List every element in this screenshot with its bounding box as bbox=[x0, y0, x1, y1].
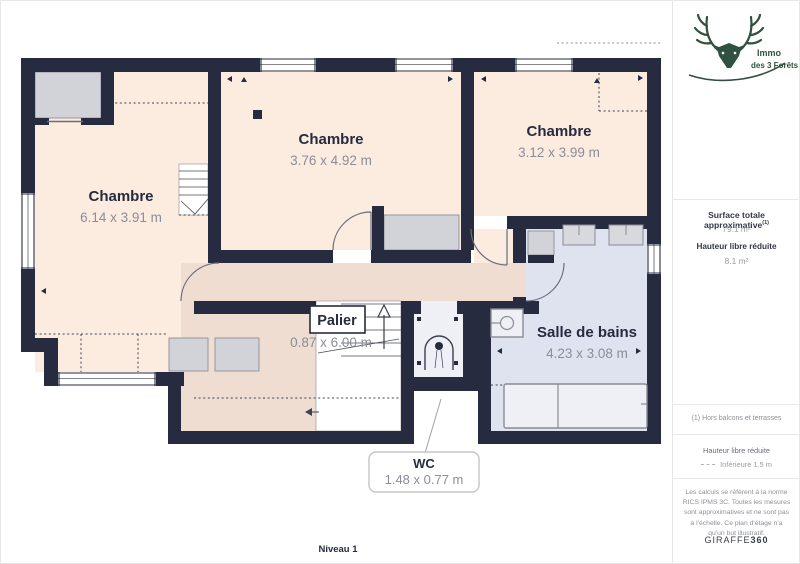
disclaimer-text: Les calculs se réfèrent à la norme RICS … bbox=[682, 488, 791, 539]
legend-item-label: Inférieure 1.5 m bbox=[720, 460, 772, 469]
room-name: Chambre bbox=[298, 131, 363, 148]
deer-logo-icon: Immo des 3 Forêts bbox=[673, 11, 800, 101]
wardrobe-2 bbox=[215, 338, 259, 371]
divider bbox=[673, 478, 800, 479]
callout-leader-line bbox=[425, 399, 441, 453]
floorplan-page: Chambre 6.14 x 3.91 m Chambre 3.76 x 4.9… bbox=[0, 0, 800, 564]
level-label: Niveau 1 bbox=[318, 544, 358, 555]
window-icon bbox=[260, 58, 316, 72]
window-icon bbox=[21, 193, 35, 269]
divider bbox=[673, 434, 800, 435]
window-icon bbox=[515, 58, 573, 72]
pillar bbox=[253, 110, 262, 119]
room-dims: 6.14 x 3.91 m bbox=[80, 210, 162, 225]
vanity-icon bbox=[563, 225, 595, 245]
window-icon bbox=[647, 244, 661, 274]
small-stairs-icon bbox=[179, 164, 208, 215]
room-name: Chambre bbox=[88, 188, 153, 205]
window-icon bbox=[58, 372, 156, 386]
wardrobe-1 bbox=[169, 338, 208, 371]
room-name: WC bbox=[413, 456, 435, 471]
brand-name-line1: Immo bbox=[757, 48, 782, 58]
bathtub-icon bbox=[504, 384, 647, 428]
room-dims: 3.76 x 4.92 m bbox=[290, 153, 372, 168]
floorplan-canvas: Chambre 6.14 x 3.91 m Chambre 3.76 x 4.9… bbox=[1, 1, 673, 564]
reduced-height-value: 8.1 m² bbox=[677, 256, 796, 266]
room-name: Palier bbox=[317, 313, 357, 329]
vanity-icon bbox=[609, 225, 643, 245]
room-dims: 3.12 x 3.99 m bbox=[518, 145, 600, 160]
brand-logo: Immo des 3 Forêts bbox=[673, 11, 800, 106]
info-sidebar: Immo des 3 Forêts Surface totale approxi… bbox=[672, 1, 800, 563]
closet-bathroom bbox=[528, 231, 554, 255]
brand-text-bold: 360 bbox=[750, 535, 768, 545]
surface-total-value: 79.1 m² bbox=[677, 224, 796, 234]
footnote: (1) Hors balcons et terrasses bbox=[677, 415, 796, 422]
divider bbox=[673, 199, 800, 200]
room-dims: 0.87 x 6.00 m bbox=[290, 335, 372, 350]
window-icon bbox=[395, 58, 453, 72]
reduced-height-label: Hauteur libre réduite bbox=[677, 242, 796, 251]
brand-text: GIRAFFE bbox=[704, 535, 750, 545]
closet-top-left bbox=[35, 72, 101, 118]
sink-icon bbox=[491, 309, 523, 337]
room-name: Salle de bains bbox=[537, 324, 637, 341]
legend-row: Inférieure 1.5 m bbox=[677, 460, 796, 469]
giraffe360-brand: GIRAFFE360 bbox=[677, 535, 796, 545]
legend-title: Hauteur libre réduite bbox=[677, 446, 796, 455]
room-name: Chambre bbox=[526, 123, 591, 140]
dashed-line-icon bbox=[701, 464, 715, 466]
room-dims: 4.23 x 3.08 m bbox=[546, 346, 628, 361]
divider bbox=[673, 404, 800, 405]
closet-hall bbox=[384, 215, 459, 250]
room-dims: 1.48 x 0.77 m bbox=[385, 472, 464, 487]
